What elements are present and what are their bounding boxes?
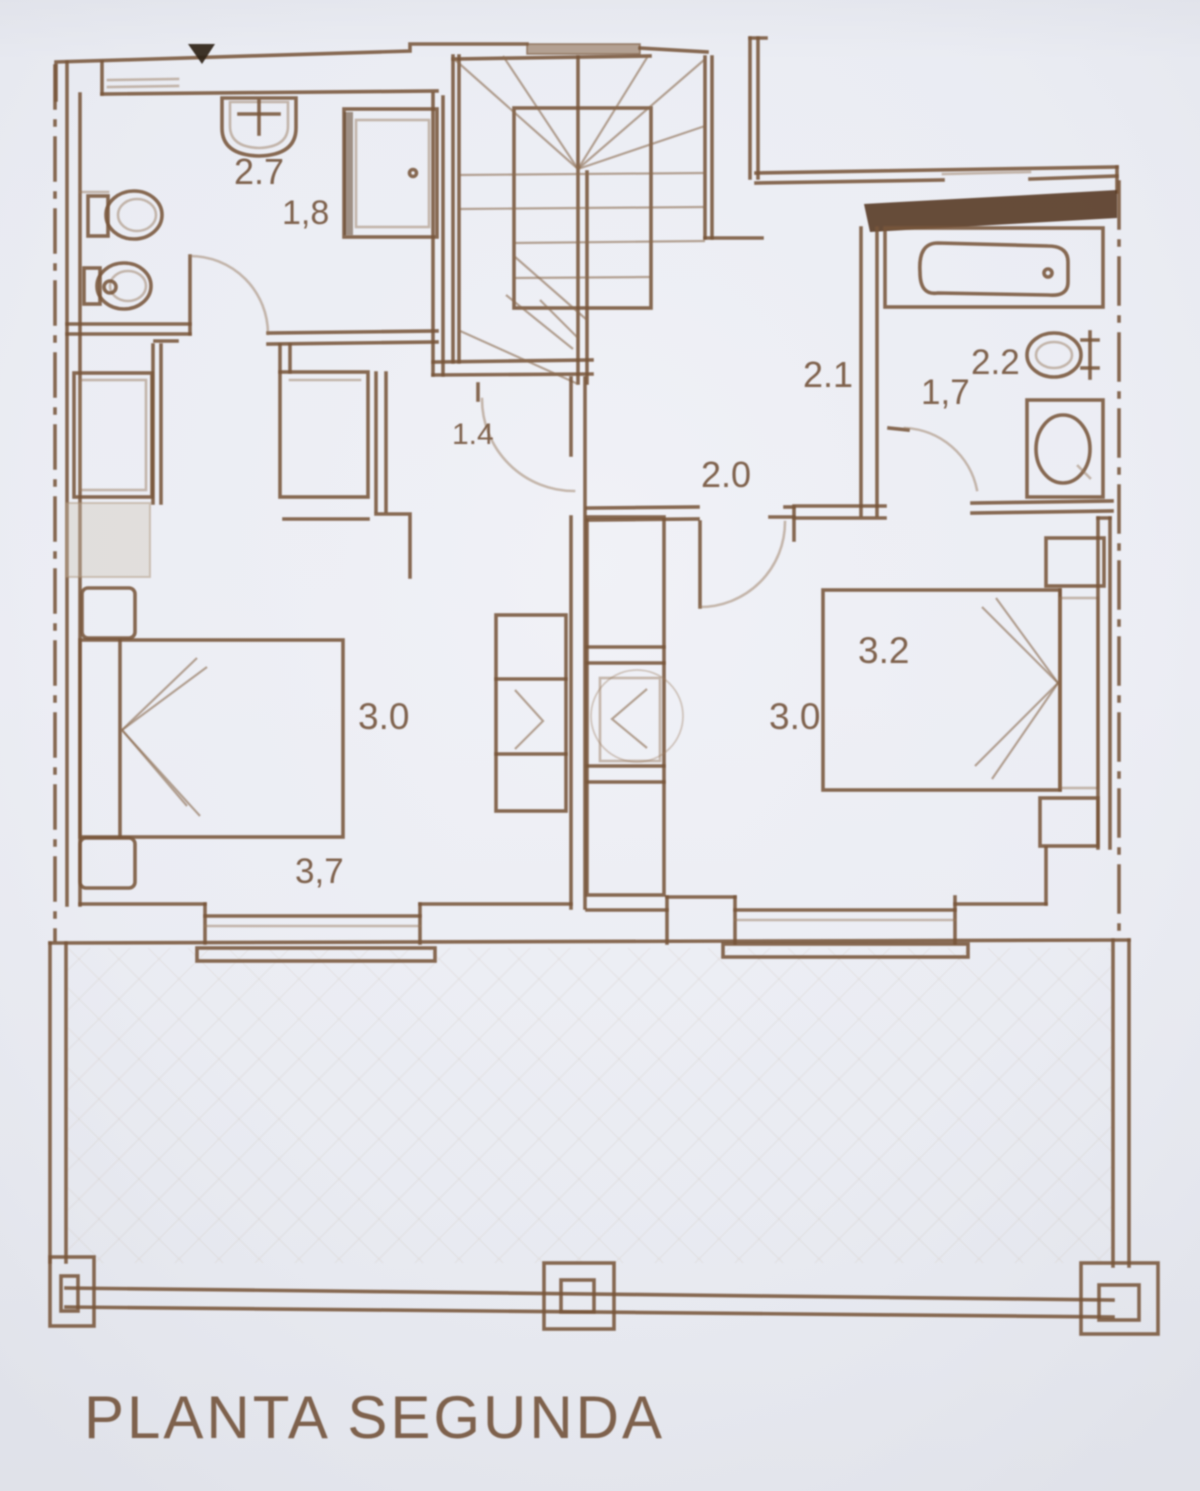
svg-text:2.0: 2.0 bbox=[701, 454, 751, 495]
svg-text:1,7: 1,7 bbox=[921, 373, 970, 412]
svg-text:3.0: 3.0 bbox=[358, 696, 409, 737]
svg-text:PLANTA SEGUNDA: PLANTA SEGUNDA bbox=[84, 1384, 665, 1451]
svg-text:3.2: 3.2 bbox=[858, 630, 909, 671]
svg-text:3.0: 3.0 bbox=[769, 696, 820, 737]
svg-text:3,7: 3,7 bbox=[295, 852, 344, 891]
svg-text:2.1: 2.1 bbox=[803, 354, 853, 395]
svg-text:1,8: 1,8 bbox=[282, 194, 329, 232]
svg-text:1.4: 1.4 bbox=[452, 418, 494, 451]
svg-text:2.7: 2.7 bbox=[234, 151, 284, 192]
svg-text:2.2: 2.2 bbox=[971, 343, 1020, 382]
